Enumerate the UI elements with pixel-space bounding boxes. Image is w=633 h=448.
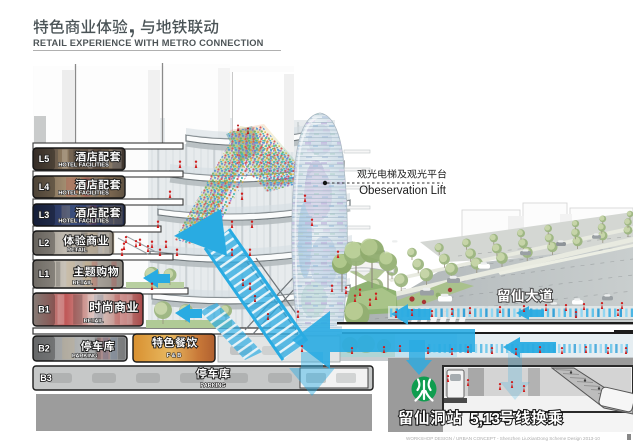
svg-text:B2: B2 [38,344,50,354]
svg-text:L1: L1 [39,269,50,279]
svg-text:HOTEL FACILITIES: HOTEL FACILITIES [58,163,109,169]
svg-text:RETAIL: RETAIL [73,281,93,287]
svg-text:L4: L4 [39,182,50,192]
svg-text:L2: L2 [39,238,50,248]
svg-text:B3: B3 [40,373,52,383]
svg-text:Obeservation Lift: Obeservation Lift [359,185,447,197]
svg-text:WORKSHOP DESIGN / URBAN CONCEP: WORKSHOP DESIGN / URBAN CONCEPT - Shenzh… [406,436,600,441]
svg-text:L3: L3 [39,210,50,220]
svg-text:PARKING: PARKING [200,383,225,389]
svg-text:5,13: 5,13 [470,411,501,428]
svg-text:L5: L5 [39,154,50,164]
svg-text:HOTEL FACILITIES: HOTEL FACILITIES [58,219,109,225]
svg-text:RETAIL: RETAIL [67,248,87,254]
svg-text:B1: B1 [38,305,50,315]
svg-text:PARKING: PARKING [72,354,97,360]
svg-text:HOTEL FACILITIES: HOTEL FACILITIES [58,191,109,197]
svg-text:RETAIL: RETAIL [84,319,104,325]
svg-text:F & B: F & B [167,353,182,359]
